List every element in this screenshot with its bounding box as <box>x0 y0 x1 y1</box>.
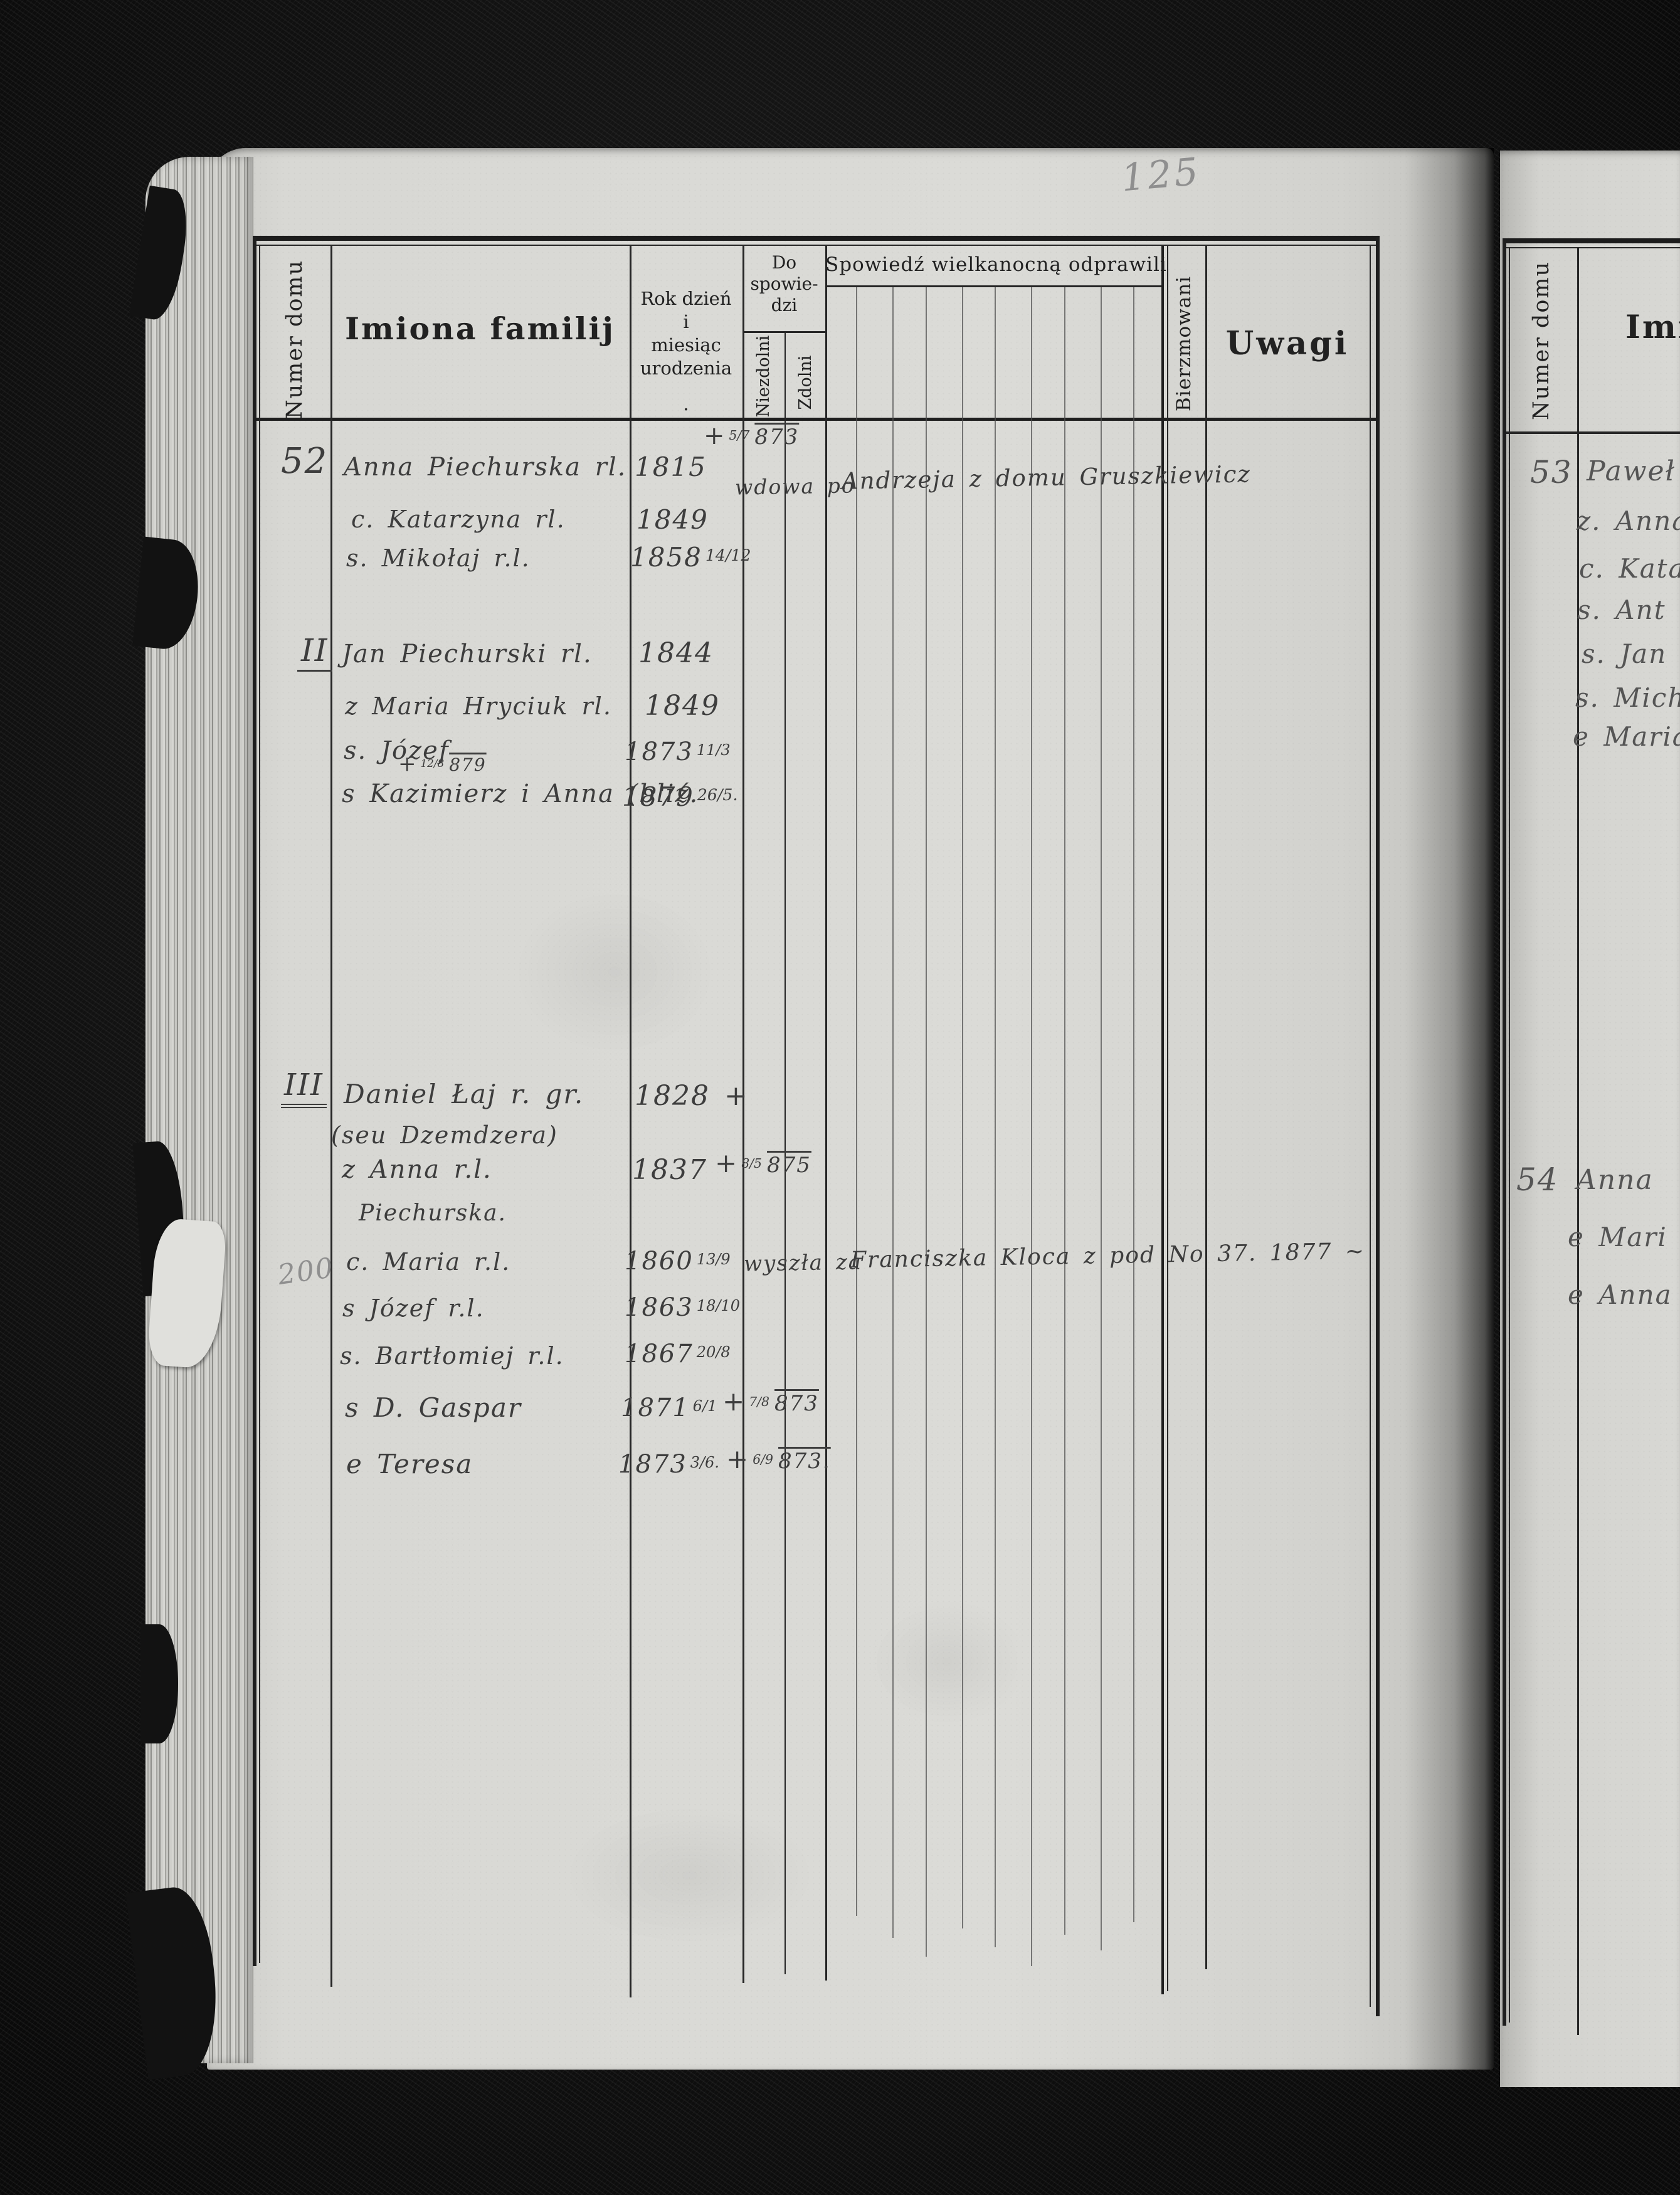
confession-subcolumn-line <box>1101 287 1102 1950</box>
birth-year: 18716/1 <box>621 1394 717 1422</box>
birth-year: 186720/8 <box>625 1340 731 1368</box>
right-table-top-inner-line <box>1503 247 1680 248</box>
entry-name: e Anna <box>1568 1279 1672 1310</box>
birth-year: 1815 <box>635 452 707 482</box>
birth-year: 185814/12 <box>630 542 751 573</box>
rok-line: Rok dzień <box>630 287 742 310</box>
book-scan: 125 Numer domu Imiona familij Rok dzień … <box>0 0 1680 2195</box>
house-number: II <box>297 632 332 672</box>
entry-name: Anna Piechurska rl. <box>344 453 626 482</box>
status-note: wyszła za <box>744 1249 863 1276</box>
table-right-border <box>1376 237 1380 2016</box>
entry-name: c. Maria r.l. <box>346 1248 510 1276</box>
entry-name-second-line: Piechurska. <box>359 1200 507 1226</box>
right-table-left-border <box>1503 240 1506 2026</box>
table-left-border <box>253 237 256 1966</box>
cross-mark: + <box>398 751 418 776</box>
right-page <box>1500 151 1680 2087</box>
do-line: spowie- <box>742 273 826 295</box>
header-zdolni: Zdolni <box>793 346 818 420</box>
house-number: 52 <box>281 441 328 482</box>
birth-year: 1849 <box>637 504 709 535</box>
entry-name: Paweł <box>1587 455 1676 487</box>
right-header-numer-domu: Numer domu <box>1523 270 1560 420</box>
entry-name: s. Jan <box>1582 638 1667 669</box>
entry-name: s. Mikołaj r.l. <box>346 544 531 572</box>
birth-year: 1828 + <box>635 1080 749 1112</box>
entry-name: Jan Piechurski rl. <box>342 640 593 669</box>
paper-smudge <box>514 891 715 1054</box>
do-line: dzi <box>742 295 826 316</box>
status-note: wdowa po <box>735 473 855 499</box>
right-table-left-inner-line <box>1509 248 1510 2023</box>
entry-name: z Maria Hryciuk rl. <box>345 692 612 720</box>
do-line: Do <box>742 252 826 273</box>
header-spowiedz-wielkanocna: Spowiedź wielkanocną odprawili <box>825 253 1162 276</box>
confession-subcolumn-line <box>1064 287 1065 1935</box>
entry-name: c. Kata <box>1579 553 1680 584</box>
bierzmowani-inner-line <box>1167 246 1168 1991</box>
header-niezdolni: Niezdolni <box>751 329 776 423</box>
entry-name: s Józef r.l. <box>342 1294 485 1322</box>
rok-dot: . <box>630 393 742 416</box>
cross-mark: + <box>722 1386 746 1417</box>
birth-year: 18733/6. <box>618 1450 719 1479</box>
birth-year: 187311/3 <box>625 738 731 766</box>
entry-name: Daniel Łaj r. gr. <box>344 1079 584 1109</box>
table-top-inner-line <box>253 245 1380 246</box>
table-left-inner-line <box>259 246 260 1963</box>
paper-smudge <box>564 1806 815 1944</box>
entry-name: z Anna r.l. <box>342 1155 492 1184</box>
table-top-border <box>253 236 1380 241</box>
bierzmowani-uwagi-divider <box>1205 246 1207 1969</box>
birth-year: 187926/5. <box>622 781 737 812</box>
entry-name: s. Mich <box>1575 682 1680 713</box>
birth-year: 186013/9 <box>625 1247 731 1276</box>
birth-year: 1849 <box>645 690 720 722</box>
death-note: +6/9873. <box>726 1444 831 1474</box>
header-uwagi: Uwagi <box>1205 325 1370 362</box>
entry-name: e Mari <box>1568 1222 1667 1252</box>
header-imiona-familij: Imiona familij <box>330 310 630 347</box>
rok-line: urodzenia <box>630 357 742 380</box>
confession-subcolumn-line <box>1031 287 1032 1966</box>
entry-name: c. Katarzyna rl. <box>351 505 566 533</box>
entry-name: e Teresa <box>346 1449 473 1479</box>
death-note: +7/8873 <box>722 1386 819 1417</box>
table-right-inner-line <box>1370 246 1371 2007</box>
header-rok-urodzenia: Rok dzień i miesiąc urodzenia . <box>630 287 742 416</box>
right-header-imiona-fragment: Imio <box>1625 309 1680 346</box>
zdolni-confession-divider <box>825 246 827 1981</box>
rok-line: i <box>630 310 742 334</box>
cross-mark: + <box>704 421 726 450</box>
entry-name-second-line: (seu Dzemdzera) <box>331 1121 558 1149</box>
house-number: III <box>281 1067 327 1108</box>
page-number: 125 <box>1119 150 1202 201</box>
numer-imiona-divider <box>330 246 332 1987</box>
right-table-top-border <box>1503 238 1680 243</box>
entry-name: s. Ant <box>1577 595 1666 625</box>
gutter-shadow <box>1405 148 1494 2070</box>
entry-name: s. Bartłomiej r.l. <box>340 1342 564 1370</box>
right-header-bottom-border <box>1503 431 1680 434</box>
house-number: 53 <box>1530 454 1573 490</box>
cross-mark: + <box>726 1444 749 1474</box>
birth-year: 186318/10 <box>625 1293 740 1322</box>
rok-spowiedz-divider <box>742 246 744 1983</box>
entry-name: z. Anna <box>1577 505 1680 536</box>
entry-name: e Maria <box>1573 721 1680 752</box>
entry-name: Anna <box>1577 1164 1654 1196</box>
book-fore-edge <box>145 157 253 2063</box>
confession-bierzmowani-divider <box>1161 246 1164 1994</box>
confession-subcolumn-line <box>856 287 857 1916</box>
torn-edge <box>140 1624 178 1743</box>
death-note: +8/5875 <box>715 1148 811 1178</box>
header-do-spowiedzi: Do spowie- dzi <box>742 252 826 316</box>
header-numer-domu: Numer domu <box>276 268 314 419</box>
death-note: +5/7873 <box>704 421 799 450</box>
death-note: +12/8879 <box>398 751 487 776</box>
birth-year: 1837 <box>632 1154 707 1186</box>
house-number: 54 <box>1516 1161 1559 1198</box>
confession-subcolumn-line <box>1133 287 1134 1922</box>
header-bierzmowani: Bierzmowani <box>1168 268 1200 419</box>
entry-name: s D. Gaspar <box>345 1392 522 1423</box>
imiona-rok-divider <box>630 246 631 1997</box>
birth-year: 1844 <box>638 637 714 669</box>
rok-line: miesiąc <box>630 334 742 357</box>
cross-mark: + <box>715 1148 738 1178</box>
paper-smudge <box>865 1599 1028 1725</box>
